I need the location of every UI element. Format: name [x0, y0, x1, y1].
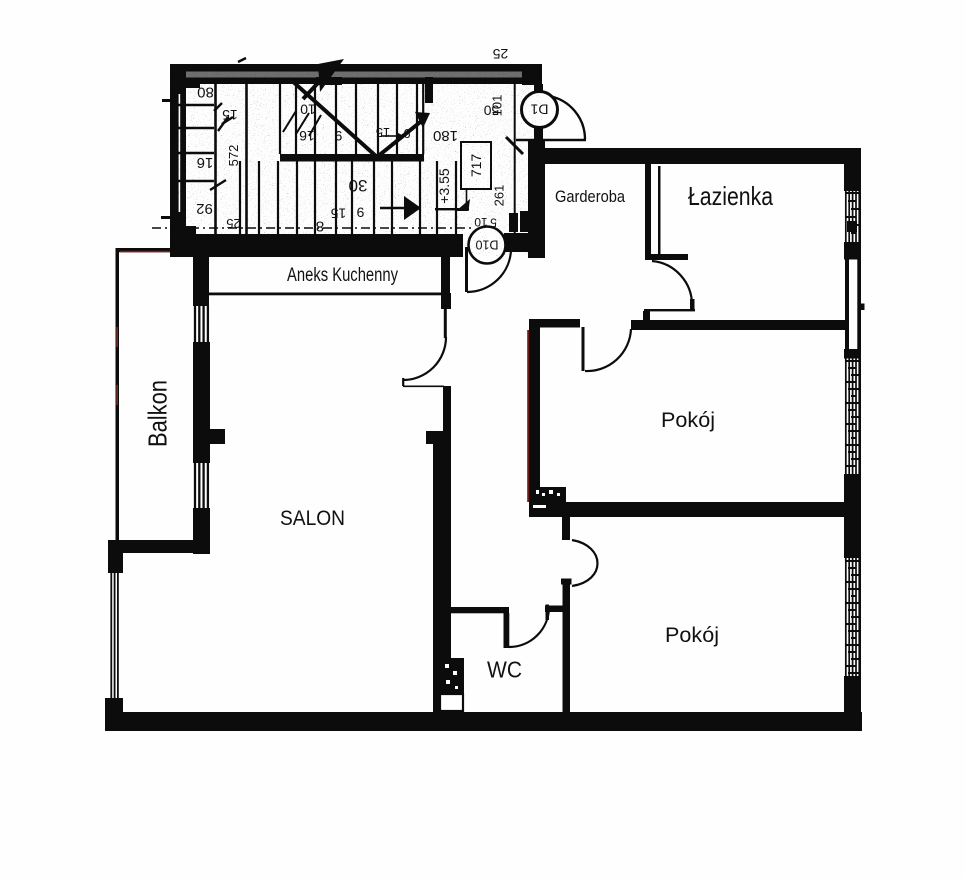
svg-text:Balkon: Balkon [143, 380, 173, 447]
svg-text:Garderoba: Garderoba [555, 187, 625, 206]
svg-text:Pokój: Pokój [665, 624, 719, 647]
svg-text:Aneks Kuchenny: Aneks Kuchenny [287, 265, 398, 286]
svg-text:SALON: SALON [280, 507, 345, 530]
svg-text:25: 25 [493, 46, 509, 62]
svg-text:WC: WC [487, 657, 522, 683]
svg-text:Pokój: Pokój [661, 409, 715, 432]
svg-text:Łazienka: Łazienka [688, 181, 773, 211]
